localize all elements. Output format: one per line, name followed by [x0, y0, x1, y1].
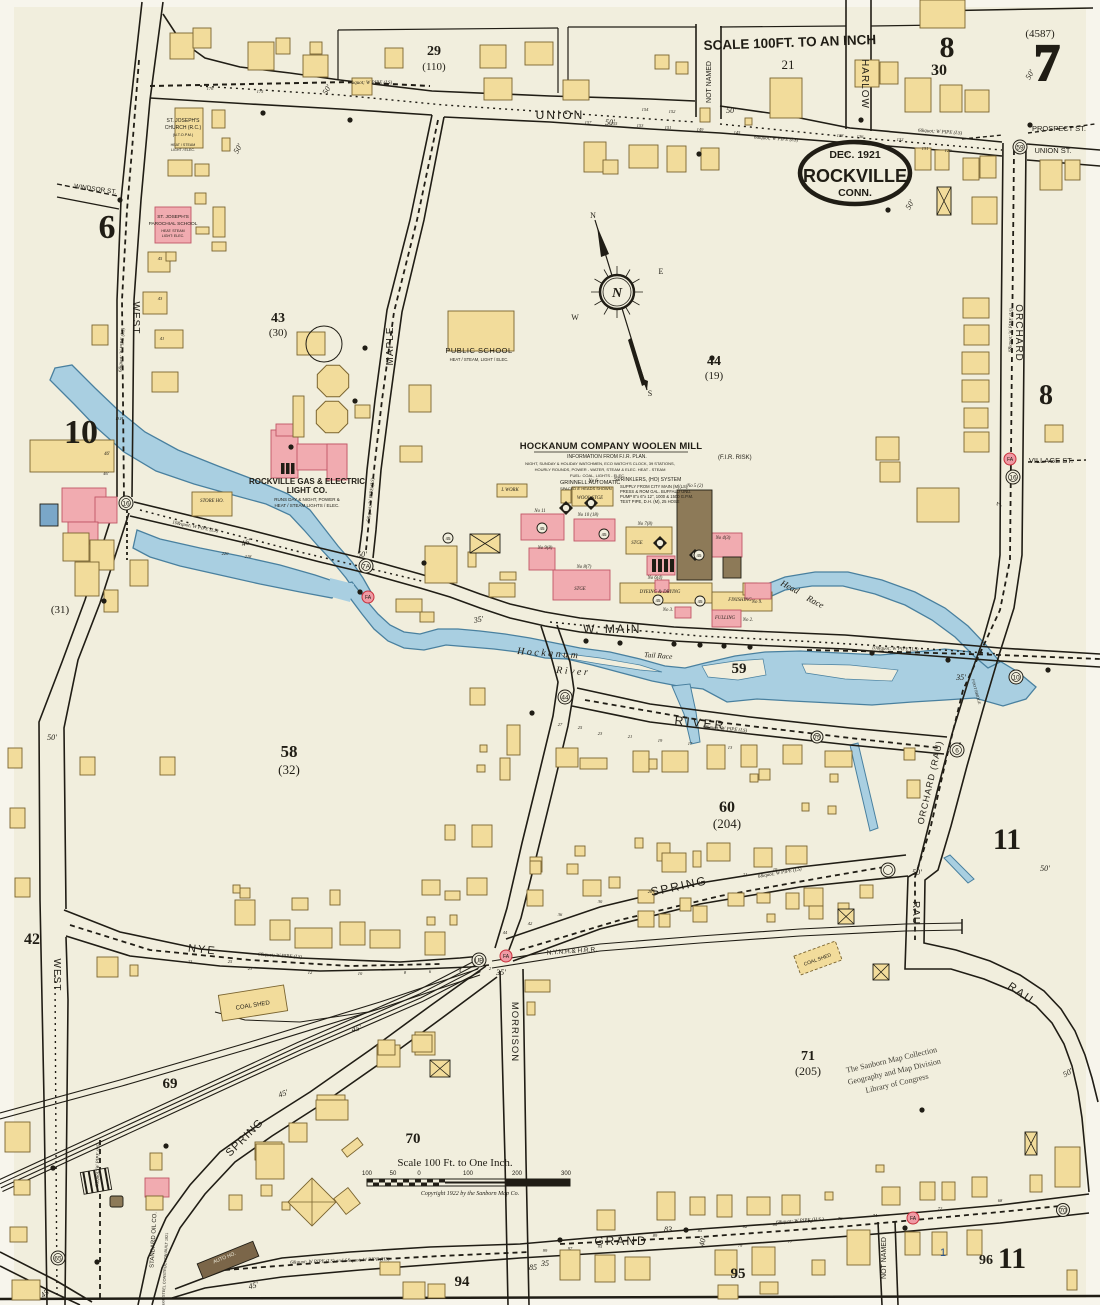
svg-text:No 2.: No 2.: [742, 618, 753, 623]
svg-text:11: 11: [998, 1242, 1026, 1275]
svg-text:44: 44: [503, 930, 508, 935]
svg-text:69: 69: [163, 1076, 178, 1092]
svg-text:VILLAGE ST.: VILLAGE ST.: [1029, 456, 1073, 465]
svg-text:83: 83: [664, 1225, 672, 1234]
svg-text:7: 7: [1034, 35, 1060, 92]
svg-text:SPACED 8' HEADS SHOWN: SPACED 8' HEADS SHOWN: [560, 486, 612, 491]
svg-text:77: 77: [788, 1239, 793, 1244]
svg-text:71: 71: [801, 1049, 815, 1064]
svg-text:ST. JOSEPH'S: ST. JOSEPH'S: [157, 214, 189, 220]
svg-text:6: 6: [99, 209, 116, 246]
svg-text:43: 43: [271, 311, 285, 326]
svg-text:99: 99: [543, 1248, 548, 1253]
svg-text:59: 59: [732, 661, 747, 677]
svg-text:29: 29: [427, 44, 441, 59]
svg-text:HEAT / STEAM, LIGHT / ELEC.: HEAT / STEAM, LIGHT / ELEC.: [450, 357, 509, 362]
svg-text:176: 176: [207, 86, 215, 91]
svg-text:(N.T.O.P.M.): (N.T.O.P.M.): [173, 133, 194, 137]
svg-text:STGE: STGE: [631, 541, 643, 546]
svg-text:151: 151: [665, 125, 672, 130]
svg-text:(205): (205): [795, 1064, 821, 1078]
svg-text:HOURLY ROUNDS, POWER - WATER,: HOURLY ROUNDS, POWER - WATER, STEAM & EL…: [535, 467, 666, 472]
svg-text:STGE: STGE: [574, 587, 586, 592]
svg-text:RAU: RAU: [910, 901, 921, 925]
svg-text:89: 89: [653, 1233, 658, 1238]
svg-text:1: 1: [940, 1247, 946, 1259]
svg-text:82: 82: [743, 1224, 748, 1229]
svg-text:72: 72: [938, 1206, 943, 1211]
svg-text:175: 175: [257, 89, 265, 94]
svg-text:218: 218: [245, 554, 253, 559]
svg-text:23: 23: [598, 731, 603, 736]
svg-text:HEAT: STEAM: HEAT: STEAM: [161, 229, 184, 233]
svg-text:LIGHT CO.: LIGHT CO.: [287, 486, 327, 495]
svg-text:220: 220: [222, 551, 230, 556]
svg-text:23: 23: [188, 959, 193, 964]
svg-text:136: 136: [857, 134, 865, 139]
svg-text:21: 21: [782, 57, 795, 72]
svg-text:10: 10: [1012, 675, 1020, 682]
svg-text:44: 44: [707, 354, 721, 369]
svg-text:HOCKANUM COMPANY WOOLEN MILL: HOCKANUM COMPANY WOOLEN MILL: [520, 441, 703, 452]
svg-text:50: 50: [390, 1171, 397, 1177]
svg-text:HEAT / STEAM: HEAT / STEAM: [171, 143, 196, 147]
svg-text:95: 95: [598, 1244, 603, 1249]
svg-text:45: 45: [158, 256, 163, 261]
svg-text:42: 42: [24, 931, 40, 948]
svg-text:(4587): (4587): [1025, 28, 1055, 40]
svg-text:(32): (32): [278, 762, 300, 777]
svg-text:155: 155: [611, 121, 619, 126]
svg-text:ROCKVILLE GAS & ELECTRIC: ROCKVILLE GAS & ELECTRIC: [249, 477, 365, 486]
svg-text:W: W: [571, 313, 579, 322]
svg-text:13: 13: [728, 745, 733, 750]
svg-text:FULLING: FULLING: [714, 616, 736, 621]
svg-text:7A: 7A: [362, 564, 371, 571]
svg-text:27: 27: [558, 722, 563, 727]
svg-text:149: 149: [697, 127, 705, 132]
svg-text:INFORMATION FROM F.I.R. PLAN.: INFORMATION FROM F.I.R. PLAN.: [567, 454, 647, 460]
svg-text:200: 200: [512, 1171, 523, 1177]
svg-text:19: 19: [658, 738, 663, 743]
svg-text:6: 6: [955, 748, 959, 755]
svg-text:No 10 (18): No 10 (18): [577, 513, 599, 518]
svg-text:157: 157: [585, 120, 593, 125]
svg-text:59: 59: [1016, 145, 1024, 152]
svg-text:50': 50': [357, 550, 367, 559]
svg-text:UB: UB: [474, 958, 483, 965]
svg-text:NOT NAMED: NOT NAMED: [706, 61, 713, 103]
svg-text:152: 152: [669, 109, 677, 114]
svg-text:(30): (30): [269, 327, 288, 339]
svg-text:135: 135: [842, 151, 850, 156]
svg-text:(110): (110): [422, 61, 446, 73]
svg-text:LIGHT: ELEC.: LIGHT: ELEC.: [162, 234, 185, 238]
svg-text:D.H.: D.H.: [115, 416, 125, 421]
svg-text:8: 8: [1039, 380, 1053, 411]
svg-text:131: 131: [922, 146, 929, 151]
svg-text:138: 138: [837, 133, 845, 138]
svg-text:30: 30: [931, 62, 947, 79]
svg-text:N: N: [611, 286, 623, 301]
svg-text:DEC. 1921: DEC. 1921: [829, 149, 881, 161]
svg-text:LIGHT / ELEC.: LIGHT / ELEC.: [171, 148, 195, 152]
svg-text:TEST PIPE, D.H. (M), 25 HOSE: TEST PIPE, D.H. (M), 25 HOSE: [620, 499, 680, 504]
svg-text:ST. JOSEPH'S: ST. JOSEPH'S: [167, 118, 201, 124]
svg-text:8: 8: [940, 31, 955, 64]
svg-text:70: 70: [406, 1131, 421, 1147]
svg-text:21: 21: [743, 872, 748, 877]
svg-text:FA: FA: [503, 954, 510, 960]
svg-text:10: 10: [358, 971, 363, 976]
svg-text:12: 12: [308, 970, 313, 975]
svg-text:(19): (19): [705, 370, 724, 382]
svg-text:85: 85: [698, 1228, 703, 1233]
svg-text:45: 45: [697, 599, 703, 604]
svg-text:PAROCHIAL SCHOOL: PAROCHIAL SCHOOL: [149, 221, 198, 227]
svg-text:No 3.: No 3.: [662, 608, 673, 613]
svg-text:50': 50': [726, 106, 736, 115]
svg-text:50': 50': [47, 733, 57, 742]
svg-text:50': 50': [912, 868, 922, 877]
svg-text:25: 25: [228, 959, 233, 964]
svg-text:PUBLIC SCHOOL: PUBLIC SCHOOL: [445, 346, 512, 355]
svg-text:91: 91: [618, 1236, 623, 1241]
svg-text:(F.I.R. RISK): (F.I.R. RISK): [718, 455, 752, 461]
svg-text:300: 300: [561, 1171, 572, 1177]
svg-text:75: 75: [813, 735, 821, 742]
svg-text:NOT NAMED: NOT NAMED: [881, 1237, 888, 1279]
svg-text:MAPLE: MAPLE: [385, 327, 396, 366]
svg-text:N: N: [590, 211, 596, 220]
svg-text:45: 45: [539, 526, 545, 531]
svg-text:STORE HO.: STORE HO.: [200, 499, 224, 504]
svg-text:WEST: WEST: [130, 302, 141, 335]
svg-text:65: 65: [54, 1256, 62, 1263]
svg-text:145: 145: [734, 130, 742, 135]
svg-text:HEAT / STEAM LIGHTS / ELEC.: HEAT / STEAM LIGHTS / ELEC.: [274, 503, 339, 508]
svg-text:HARLOW: HARLOW: [859, 59, 870, 109]
svg-text:No 11: No 11: [533, 509, 545, 514]
svg-text:154: 154: [642, 107, 650, 112]
svg-text:WEST: WEST: [51, 959, 62, 992]
svg-text:FA: FA: [910, 1216, 917, 1222]
svg-text:S: S: [648, 389, 652, 398]
svg-text:(31): (31): [51, 604, 70, 616]
svg-text:76: 76: [838, 1216, 843, 1221]
svg-text:17: 17: [688, 741, 693, 746]
svg-text:45: 45: [696, 553, 702, 558]
svg-text:45: 45: [445, 536, 451, 541]
svg-text:24: 24: [698, 880, 703, 885]
svg-text:132: 132: [897, 137, 905, 142]
svg-text:Copyright 1922 by the Sanborn: Copyright 1922 by the Sanborn Map Co.: [421, 1191, 519, 1197]
svg-text:11: 11: [993, 823, 1021, 856]
svg-text:L WORK: L WORK: [500, 488, 519, 493]
svg-text:50': 50': [1040, 864, 1050, 873]
svg-text:ROCKVILLE: ROCKVILLE: [803, 166, 907, 186]
svg-text:58: 58: [281, 742, 298, 761]
svg-text:68: 68: [998, 1198, 1003, 1203]
svg-text:26: 26: [648, 889, 653, 894]
svg-text:PROSPECT ST.: PROSPECT ST.: [1032, 124, 1086, 133]
svg-text:No 9.: No 9.: [751, 600, 762, 605]
svg-text:45: 45: [601, 532, 607, 537]
svg-text:FA: FA: [365, 595, 372, 601]
svg-text:16: 16: [122, 501, 130, 508]
svg-text:ORCHARD: ORCHARD: [1013, 304, 1024, 362]
svg-text:CHURCH (R.C.): CHURCH (R.C.): [165, 125, 202, 131]
svg-text:153: 153: [637, 123, 645, 128]
svg-text:19: 19: [773, 867, 778, 872]
svg-text:35': 35': [955, 673, 966, 682]
svg-text:96: 96: [979, 1253, 993, 1268]
svg-text:R i v e r: R i v e r: [555, 665, 588, 678]
svg-text:RUNS DAY & NIGHT, POWER &: RUNS DAY & NIGHT, POWER &: [274, 497, 340, 502]
svg-text:E: E: [659, 267, 664, 276]
svg-text:79: 79: [738, 1243, 743, 1248]
svg-text:44: 44: [561, 695, 569, 702]
svg-text:DYEING & DRYING: DYEING & DRYING: [639, 590, 681, 595]
svg-text:60: 60: [719, 799, 735, 816]
svg-text:No 6(4): No 6(4): [647, 576, 663, 581]
svg-text:No 8(7): No 8(7): [576, 565, 592, 570]
svg-text:MORRISON: MORRISON: [509, 1002, 520, 1062]
svg-text:41: 41: [160, 336, 165, 341]
svg-text:CONN.: CONN.: [838, 187, 872, 199]
svg-text:46': 46': [104, 452, 111, 457]
svg-text:UNION ST.: UNION ST.: [1034, 146, 1071, 155]
svg-text:45: 45: [655, 598, 661, 603]
svg-text:35: 35: [540, 1259, 549, 1268]
svg-text:10: 10: [64, 414, 98, 451]
svg-text:21: 21: [628, 734, 633, 739]
svg-text:40': 40': [697, 1236, 708, 1247]
svg-text:85: 85: [529, 1263, 537, 1272]
svg-text:21: 21: [248, 966, 253, 971]
svg-text:97: 97: [568, 1246, 573, 1251]
svg-text:129: 129: [945, 148, 953, 153]
svg-text:16: 16: [1009, 475, 1017, 482]
svg-text:Scale 100 Ft. to One Inch.: Scale 100 Ft. to One Inch.: [397, 1157, 512, 1169]
svg-text:95: 95: [731, 1266, 746, 1282]
svg-text:35': 35': [495, 968, 506, 977]
svg-text:70: 70: [1059, 1208, 1067, 1215]
svg-text:30: 30: [598, 899, 603, 904]
svg-text:WOOL STGE: WOOL STGE: [577, 496, 603, 501]
svg-text:74: 74: [873, 1213, 878, 1218]
svg-text:25: 25: [578, 725, 583, 730]
svg-text:FINISHING: FINISHING: [727, 598, 752, 603]
svg-text:100: 100: [463, 1171, 474, 1177]
svg-text:SPRINKLERS, (HO) SYSTEM: SPRINKLERS, (HO) SYSTEM: [614, 477, 681, 483]
svg-text:FA: FA: [1007, 457, 1014, 463]
svg-text:UNION: UNION: [536, 108, 585, 122]
svg-text:80: 80: [773, 1222, 778, 1227]
svg-text:NIGHT, SUNDAY & HOLIDAY WATCHM: NIGHT, SUNDAY & HOLIDAY WATCHMEN, ECO WA…: [525, 461, 675, 466]
svg-text:43: 43: [158, 296, 163, 301]
svg-text:42: 42: [528, 921, 533, 926]
svg-text:6&quot; W PIPE (LS): 6&quot; W PIPE (LS): [348, 81, 393, 86]
svg-text:94: 94: [455, 1274, 471, 1290]
svg-text:35': 35': [472, 614, 484, 625]
svg-text:W. MAIN: W. MAIN: [583, 622, 641, 636]
svg-text:78: 78: [808, 1219, 813, 1224]
svg-text:36: 36: [558, 912, 563, 917]
svg-text:100: 100: [362, 1171, 373, 1177]
svg-text:(204): (204): [713, 816, 741, 831]
svg-text:No 7(8): No 7(8): [637, 522, 653, 527]
svg-text:No 4(3): No 4(3): [715, 536, 731, 541]
svg-text:No 9(8): No 9(8): [537, 546, 553, 551]
